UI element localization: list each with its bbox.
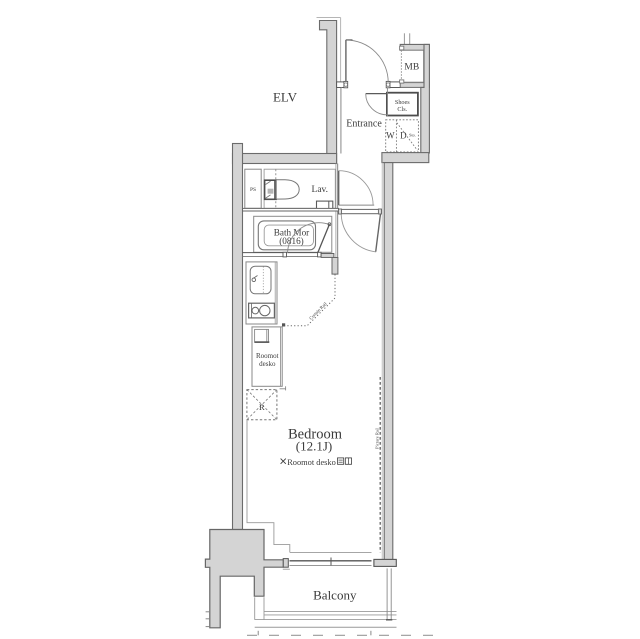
svg-text:Entrance: Entrance (346, 118, 382, 129)
svg-text:PS: PS (250, 187, 256, 193)
svg-text:D: D (400, 131, 407, 141)
svg-text:Roomot desko: Roomot desko (287, 458, 336, 467)
svg-text:Lav.: Lav. (312, 185, 329, 195)
svg-text:R: R (259, 402, 265, 412)
svg-text:MB: MB (404, 63, 419, 73)
svg-text:W: W (386, 131, 395, 141)
svg-text:Sto.: Sto. (409, 133, 416, 138)
svg-text:Roomot: Roomot (256, 352, 279, 360)
svg-text:Picture Rail: Picture Rail (375, 427, 380, 449)
svg-text:Balcony: Balcony (313, 587, 357, 602)
svg-text:(12.1J): (12.1J) (296, 438, 332, 453)
svg-text:Cls.: Cls. (397, 106, 407, 113)
svg-text:desko: desko (259, 360, 276, 368)
svg-text:ELV: ELV (273, 90, 298, 105)
